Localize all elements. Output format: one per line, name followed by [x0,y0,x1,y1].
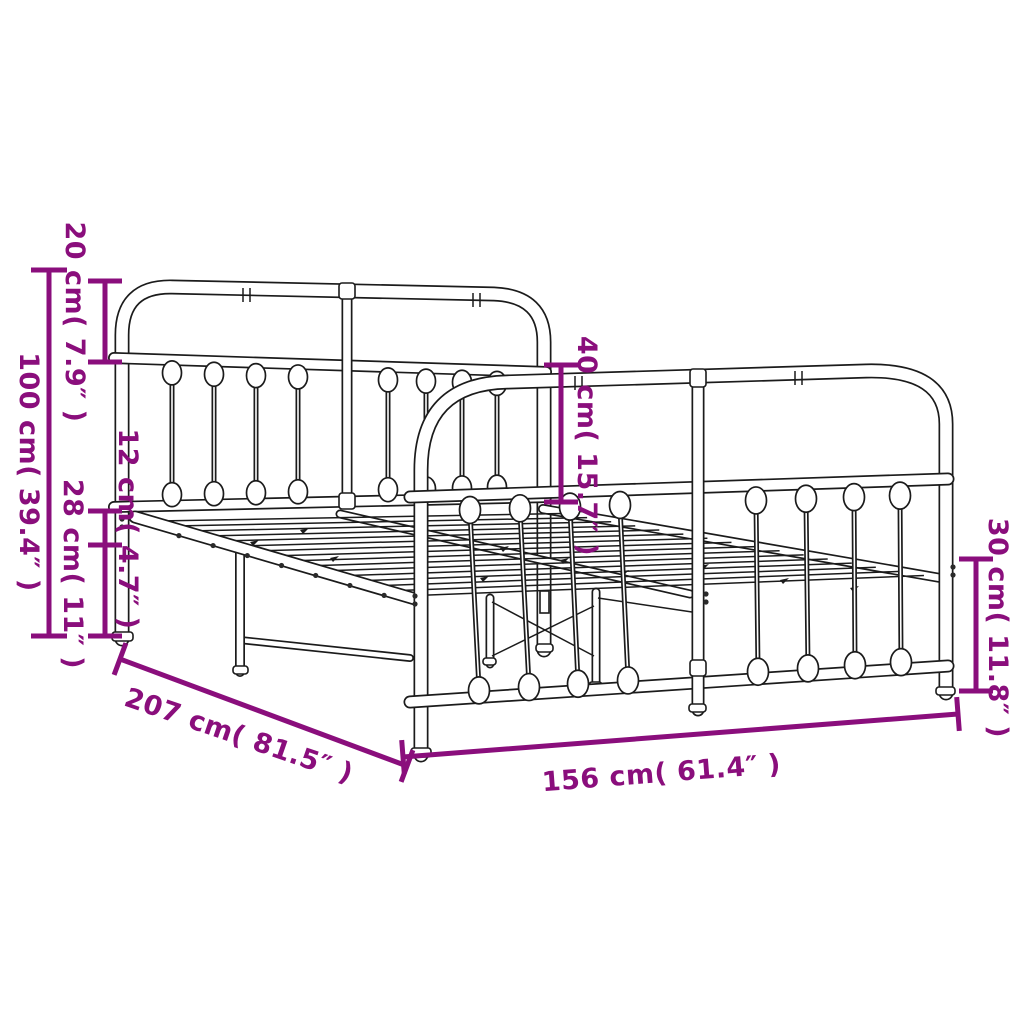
footboard-spindle-finial [890,482,911,509]
headboard-frame [122,287,544,650]
footboard-spindle-finial [796,485,817,512]
footboard-spindle-finial [798,655,819,682]
dim-label-width: 156 cm( 61.4″ ) [541,749,782,798]
headboard-spindle-finial [379,478,398,502]
footboard-spindle-finial [891,649,912,676]
footboard-spindle-finial [568,670,589,697]
headboard-spindle-finial [205,362,224,386]
leg-foot [483,658,496,665]
center-post-sleeve [690,369,706,387]
footboard-spindle-finial [746,487,767,514]
screw-dot [703,591,708,596]
footboard-spindle [854,499,855,663]
footboard-spindle-finial [748,658,769,685]
screw-dot [950,572,955,577]
screw-dot [313,573,318,578]
footboard-spindle [470,512,479,688]
headboard-spindle-finial [289,480,308,504]
screw-dot [382,593,387,598]
leg-foot [689,704,706,712]
screw-dot [176,533,181,538]
footboard-spindle-finial [510,495,531,522]
headboard-spindle-finial [289,365,308,389]
screw-dot [412,593,417,598]
headboard-spindle-finial [205,482,224,506]
center-post-sleeve [690,660,706,676]
headboard-spindle-finial [163,361,182,385]
leg-foot [536,644,553,652]
dim-label-headboard-top-section: 20 cm( 7.9″ ) [59,222,90,423]
dim-label-frame-depth: 12 cm( 4.7″ ) [112,429,143,630]
dim-label-footboard-height: 30 cm( 11.8″ ) [982,518,1013,738]
screw-dot [245,553,250,558]
support-rail [240,640,410,658]
footboard-spindle [900,498,901,661]
footboard-lower-rail [410,666,948,702]
center-bar-sleeve [339,493,355,509]
headboard-spindle-finial [379,368,398,392]
far-side-rail [543,509,946,579]
footboard-spindle-finial [469,677,490,704]
screw-dot [347,583,352,588]
support-bracket [540,591,549,613]
center-bar-sleeve [339,283,355,299]
headboard-spindle-finial [417,369,436,393]
dim-label-overall-height: 100 cm( 39.4″ ) [13,352,44,592]
footboard-spindle-finial [845,652,866,679]
dim-label-underbed-clearance: 28 cm( 11″ ) [57,479,88,669]
footboard-spindle [620,507,628,678]
dim-label-headboard-to-base: 40 cm( 15.7″ ) [571,336,602,556]
screw-dot [703,599,708,604]
footboard-spindle-finial [844,484,865,511]
leg-foot [936,687,955,695]
headboard-spindle-finial [247,481,266,505]
screw-dot [211,543,216,548]
footboard-spindle-finial [618,667,639,694]
headboard-frame [122,287,544,650]
headboard-spindle-finial [247,364,266,388]
screw-dot [412,601,417,606]
footboard-spindle-finial [519,674,540,701]
headboard-spindle-finial [163,483,182,507]
footboard-spindle-finial [460,496,481,523]
footboard-spindle-finial [610,491,631,518]
footboard-spindle [520,510,529,685]
bed-dimension-diagram: 100 cm( 39.4″ ) 20 cm( 7.9″ ) 12 cm( 4.7… [0,0,1024,1024]
screw-dot [950,564,955,569]
screw-dot [279,563,284,568]
leg-foot [233,666,248,674]
support-brace [598,598,692,612]
